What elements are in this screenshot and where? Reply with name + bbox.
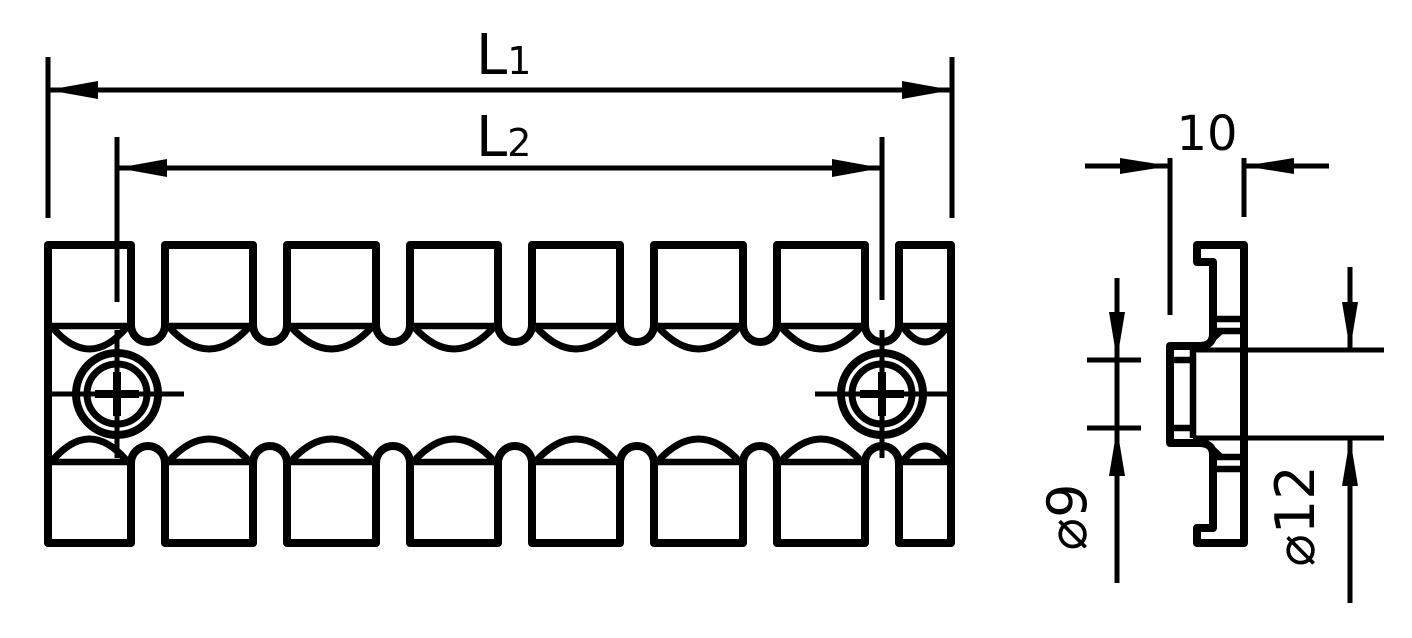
side-view: 10 ⌀9 ⌀12 [1036, 106, 1384, 603]
dim-l1-label: L1 [476, 23, 531, 88]
dim-l2-label: L2 [476, 105, 531, 170]
profile-outline [1170, 245, 1244, 543]
arrowhead-right [902, 81, 952, 99]
arrowhead-bottom [1342, 438, 1358, 486]
dimension-width-10: 10 [1085, 106, 1329, 315]
arrowhead-right [832, 159, 882, 177]
technical-drawing: L1 L2 10 [0, 0, 1412, 638]
drawing-canvas: L1 L2 10 [0, 0, 1412, 638]
dimension-diameter-9: ⌀9 [1036, 278, 1141, 583]
arrowhead-left [117, 159, 167, 177]
front-view: L1 L2 [48, 23, 952, 543]
arrowhead-bottom [1109, 428, 1125, 476]
arrowhead-top [1109, 312, 1125, 360]
arrowhead-left [48, 81, 98, 99]
arrowhead-left [1120, 158, 1170, 174]
arrowhead-right [1244, 158, 1294, 174]
extension-ticks [1087, 360, 1141, 428]
arrowhead-top [1342, 302, 1358, 350]
dim-diameter-9-label: ⌀9 [1036, 484, 1099, 551]
dim-width-label: 10 [1176, 106, 1237, 162]
dim-diameter-12-label: ⌀12 [1264, 465, 1327, 566]
